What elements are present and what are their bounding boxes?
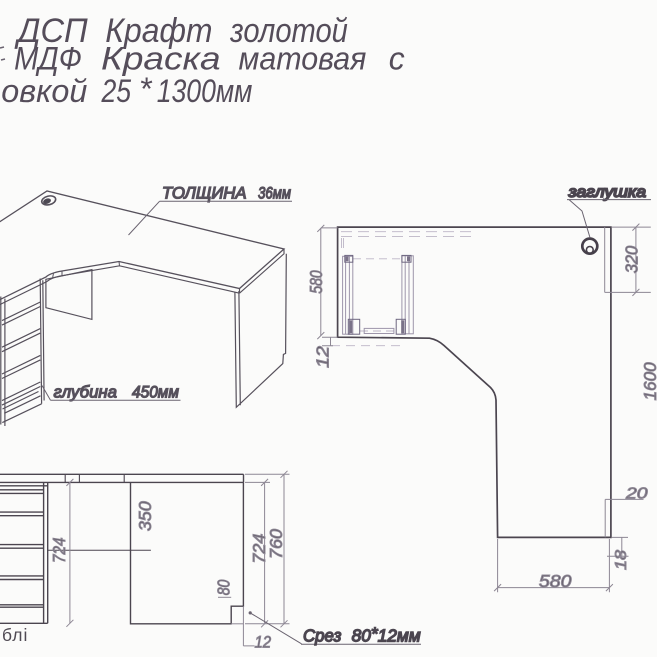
- svg-text:Срез: Срез: [303, 626, 341, 646]
- svg-text:80*12мм: 80*12мм: [352, 624, 421, 646]
- svg-text:матовая: матовая: [239, 40, 367, 76]
- svg-text:320: 320: [622, 246, 642, 274]
- svg-text:12: 12: [313, 346, 333, 368]
- svg-text:1600: 1600: [640, 362, 657, 400]
- svg-text:12: 12: [255, 633, 272, 652]
- svg-text:20: 20: [625, 485, 648, 502]
- svg-text:с: с: [389, 40, 405, 76]
- svg-text:450мм: 450мм: [132, 383, 179, 402]
- svg-text:блі: блі: [2, 625, 28, 645]
- svg-text:580: 580: [539, 571, 572, 591]
- svg-text:580: 580: [306, 270, 326, 294]
- svg-text:заглушка: заглушка: [567, 184, 646, 201]
- svg-text:1300мм: 1300мм: [157, 73, 253, 109]
- svg-text:25: 25: [101, 73, 132, 109]
- svg-text:глубина: глубина: [54, 383, 118, 402]
- svg-text:Краска: Краска: [101, 40, 221, 76]
- svg-text:36мм: 36мм: [258, 184, 291, 203]
- svg-text:724: 724: [49, 537, 69, 563]
- svg-text:ТОЛЩИНА: ТОЛЩИНА: [162, 184, 247, 203]
- svg-text:*: *: [139, 71, 153, 107]
- svg-text:18: 18: [613, 550, 630, 570]
- svg-text:МДФ: МДФ: [14, 40, 82, 76]
- svg-text:350: 350: [135, 501, 155, 531]
- svg-text:760: 760: [266, 529, 286, 559]
- svg-text:овкой: овкой: [1, 73, 87, 109]
- svg-text:80: 80: [214, 579, 234, 595]
